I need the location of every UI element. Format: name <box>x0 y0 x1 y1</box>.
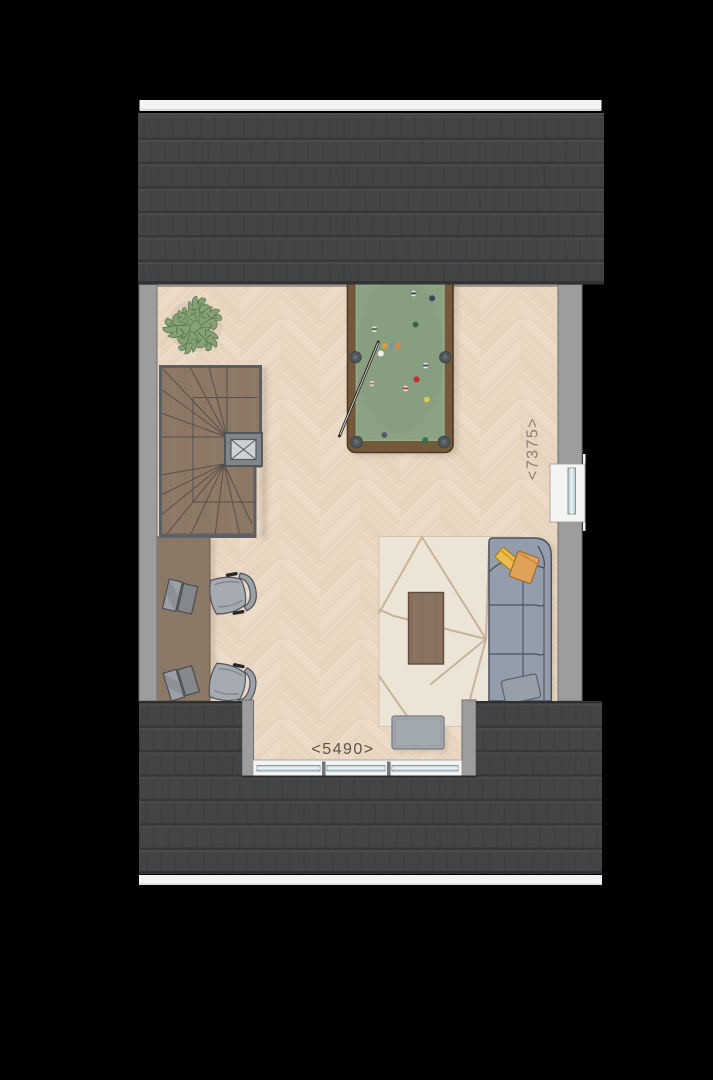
svg-text:<7375>: <7375> <box>525 417 542 480</box>
svg-text:<5490>: <5490> <box>311 741 374 758</box>
